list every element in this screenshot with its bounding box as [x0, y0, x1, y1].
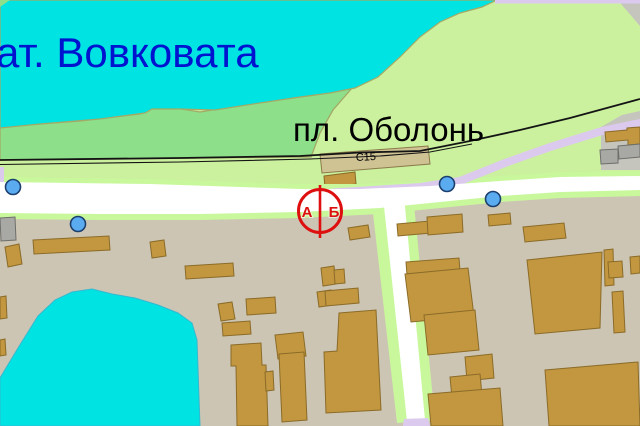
building — [630, 256, 640, 274]
poi-dot[interactable] — [6, 180, 21, 195]
platform-name-label: пл. Оболонь — [293, 111, 484, 148]
side-road-lavender-end — [403, 418, 430, 426]
building — [428, 388, 503, 426]
building — [612, 291, 625, 333]
poi-dot[interactable] — [486, 192, 501, 207]
map-canvas[interactable]: С15 — [0, 0, 640, 426]
building — [150, 240, 166, 258]
building — [0, 339, 6, 356]
ab-marker-letter-b: Б — [329, 204, 340, 221]
building — [424, 310, 479, 355]
lavender-road-left-sliver — [0, 167, 4, 183]
building — [397, 221, 431, 236]
poi-dot[interactable] — [440, 177, 455, 192]
building — [0, 217, 16, 241]
platform-code-label: С15 — [356, 151, 377, 164]
building — [265, 371, 274, 391]
building — [600, 149, 618, 164]
building — [427, 214, 463, 235]
building — [488, 213, 511, 226]
building — [218, 302, 235, 321]
poi-dot[interactable] — [71, 217, 86, 232]
building — [608, 261, 623, 278]
building — [527, 252, 602, 334]
building — [246, 297, 276, 315]
lavender-road-top-strip — [495, 0, 640, 4]
building — [618, 144, 640, 159]
building — [222, 321, 251, 336]
water-name-label: ат. Вовковата — [0, 29, 259, 76]
building — [348, 225, 370, 240]
building — [0, 296, 7, 319]
ab-marker-letter-a: А — [302, 204, 313, 221]
building — [334, 269, 345, 284]
building — [325, 288, 359, 306]
building — [545, 362, 640, 426]
building — [185, 263, 234, 279]
building — [279, 352, 307, 422]
building — [321, 266, 336, 286]
building — [5, 244, 22, 267]
